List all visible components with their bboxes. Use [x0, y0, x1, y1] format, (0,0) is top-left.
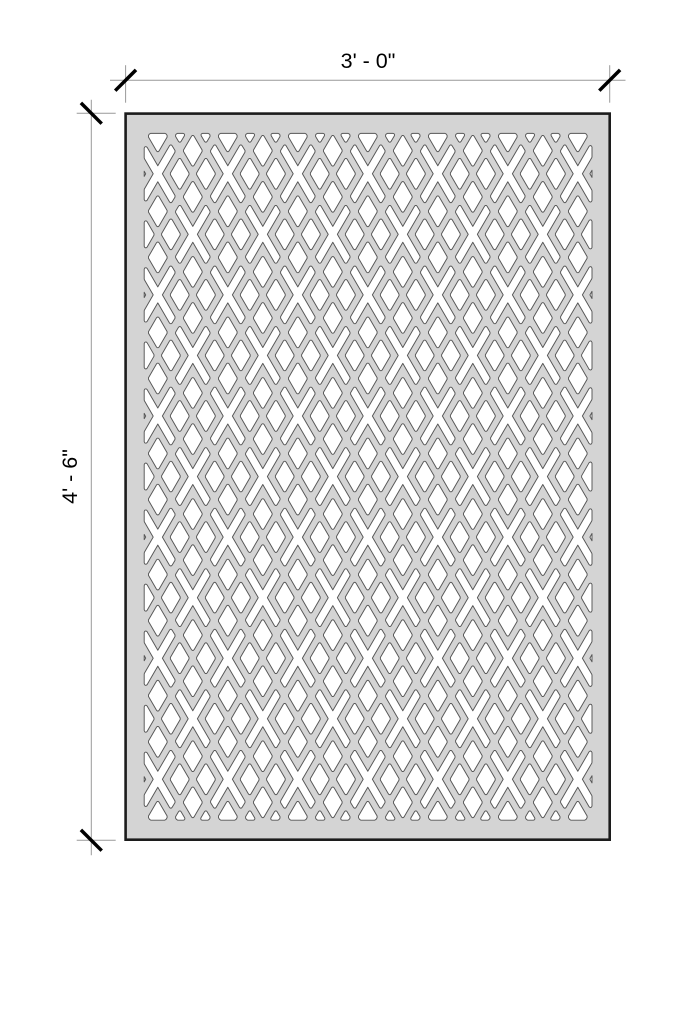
svg-text:3' - 0": 3' - 0": [341, 49, 396, 73]
svg-text:4' - 6": 4' - 6": [58, 449, 82, 504]
